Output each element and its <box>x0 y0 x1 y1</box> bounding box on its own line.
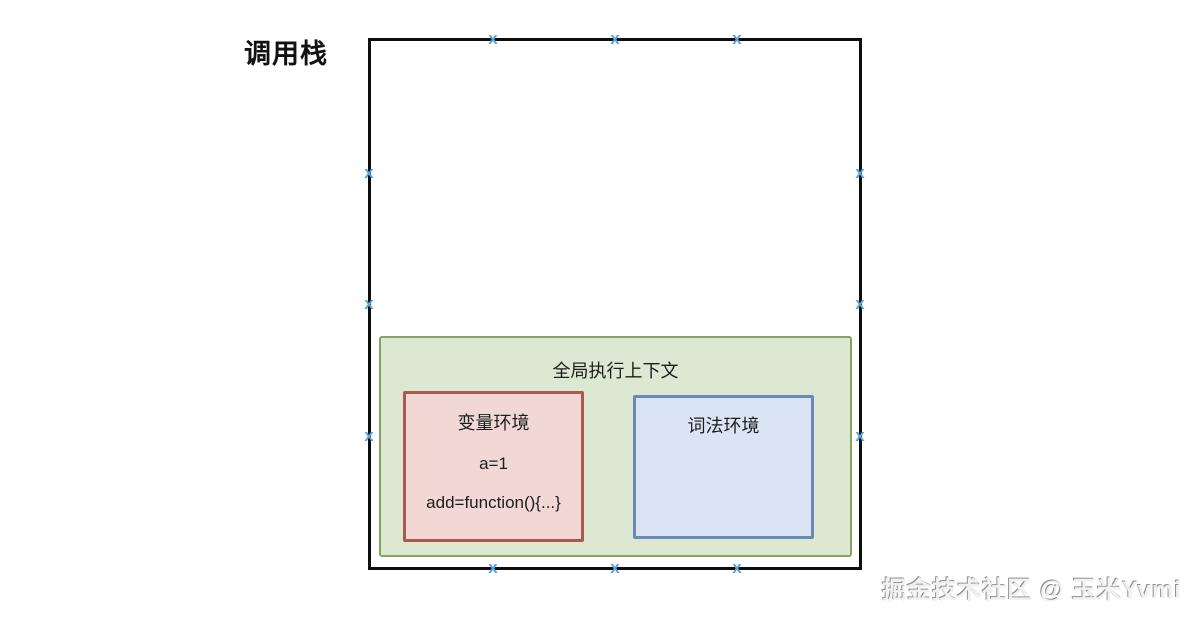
connection-marker-icon: x <box>855 163 864 180</box>
lexical-environment-box: 词法环境 <box>633 395 814 539</box>
variable-entry-a: a=1 <box>406 454 581 474</box>
variable-entry-add: add=function(){...} <box>406 493 581 513</box>
connection-marker-icon: x <box>488 30 497 47</box>
connection-marker-icon: x <box>610 30 619 47</box>
global-execution-context-box: 全局执行上下文 变量环境 a=1 add=function(){...} 词法环… <box>379 336 852 557</box>
connection-marker-icon: x <box>855 295 864 312</box>
connection-marker-icon: x <box>364 426 373 443</box>
connection-marker-icon: x <box>364 163 373 180</box>
connection-marker-icon: x <box>610 559 619 576</box>
connection-marker-icon: x <box>364 295 373 312</box>
global-execution-context-label: 全局执行上下文 <box>381 357 850 383</box>
variable-environment-label: 变量环境 <box>406 409 581 435</box>
diagram-canvas: 调用栈 x x x x x x x x x x x x 全局执行上下文 变量环境… <box>0 0 1194 618</box>
variable-environment-box: 变量环境 a=1 add=function(){...} <box>403 391 584 542</box>
call-stack-box: x x x x x x x x x x x x 全局执行上下文 变量环境 a=1… <box>368 38 862 570</box>
connection-marker-icon: x <box>488 559 497 576</box>
call-stack-title: 调用栈 <box>244 40 328 70</box>
lexical-environment-label: 词法环境 <box>636 412 811 438</box>
connection-marker-icon: x <box>855 426 864 443</box>
connection-marker-icon: x <box>732 559 741 576</box>
connection-marker-icon: x <box>732 30 741 47</box>
watermark: 掘金技术社区 @ 玉米Yvmi <box>882 570 1182 605</box>
